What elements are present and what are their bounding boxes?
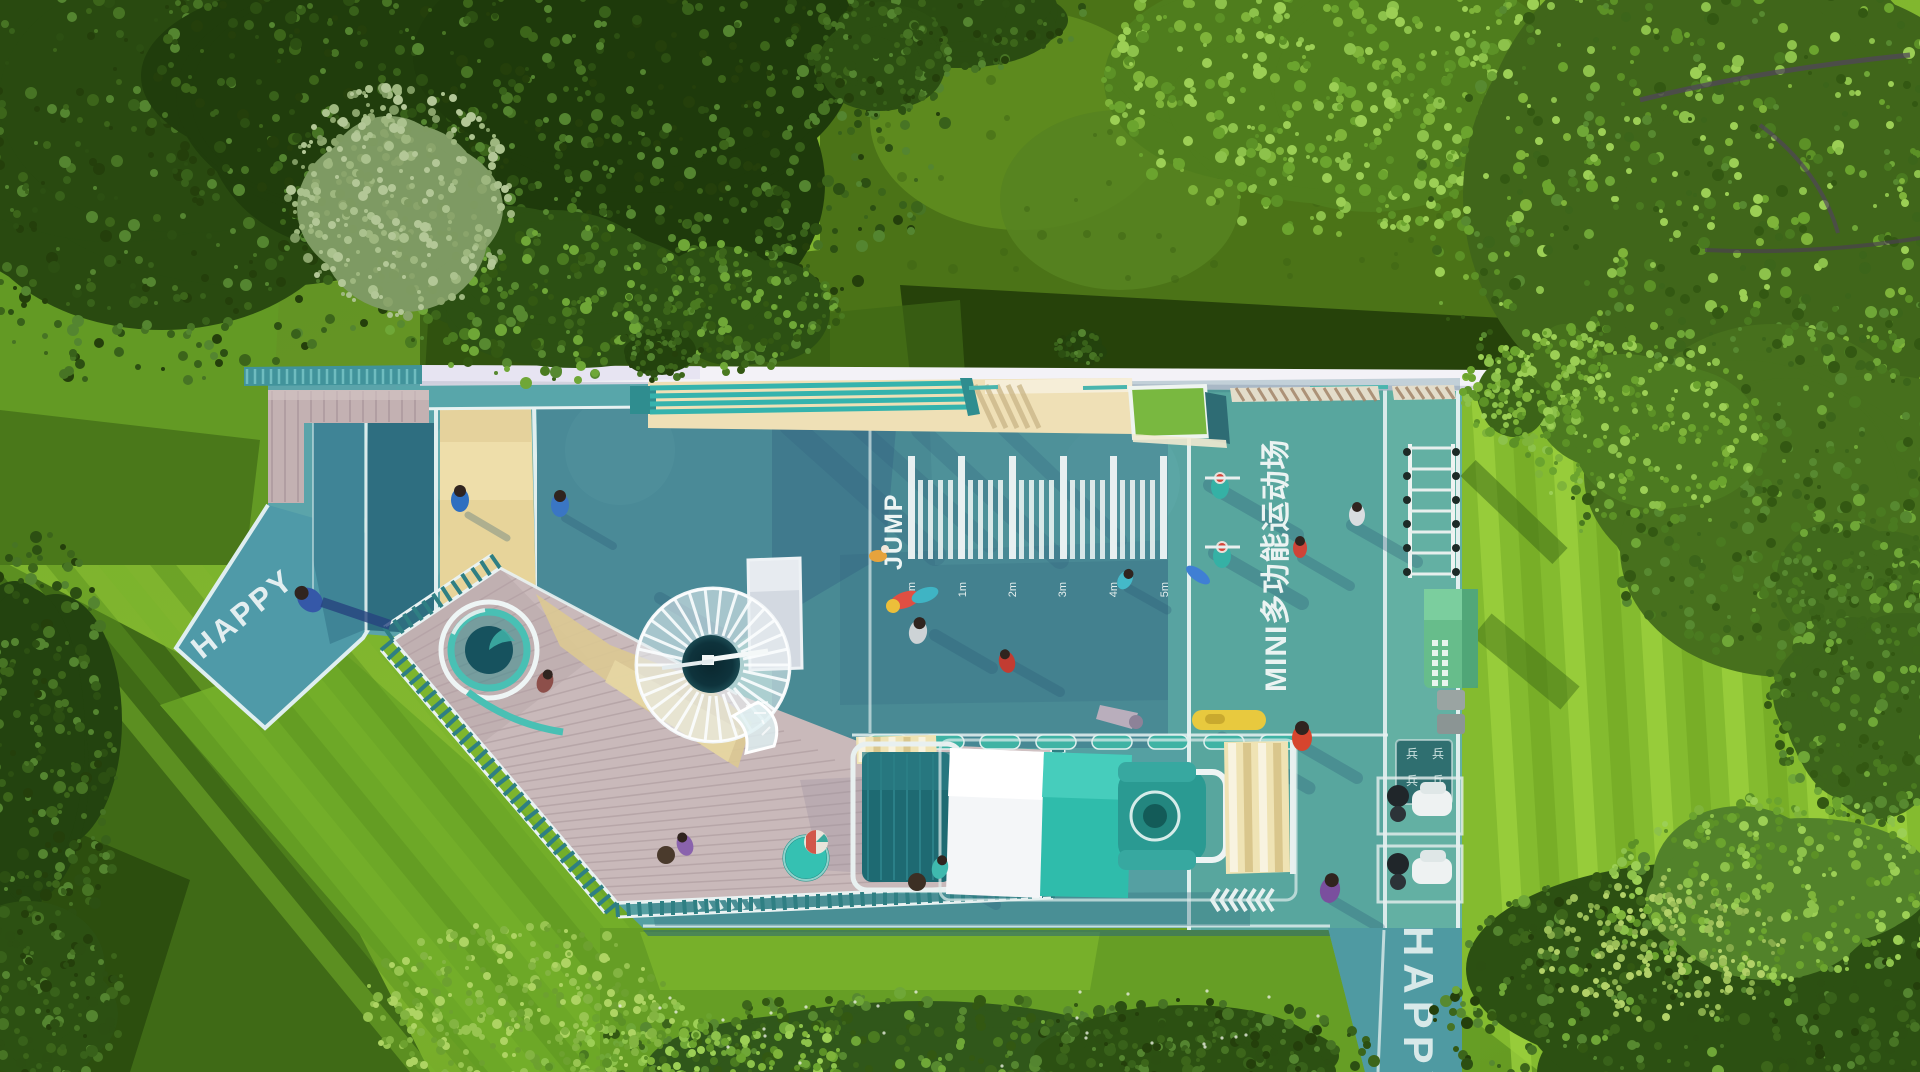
svg-text:兵: 兵 xyxy=(1406,774,1418,788)
svg-text:HAPPY: HAPPY xyxy=(1395,926,1442,1072)
svg-text:1m: 1m xyxy=(957,582,969,597)
svg-text:5m: 5m xyxy=(1159,582,1171,597)
svg-text:2m: 2m xyxy=(1007,582,1019,597)
svg-text:兵: 兵 xyxy=(1406,747,1418,761)
svg-text:3m: 3m xyxy=(1057,582,1069,597)
svg-text:兵: 兵 xyxy=(1432,747,1444,761)
svg-text:MINI多功能运动场: MINI多功能运动场 xyxy=(1260,439,1293,692)
